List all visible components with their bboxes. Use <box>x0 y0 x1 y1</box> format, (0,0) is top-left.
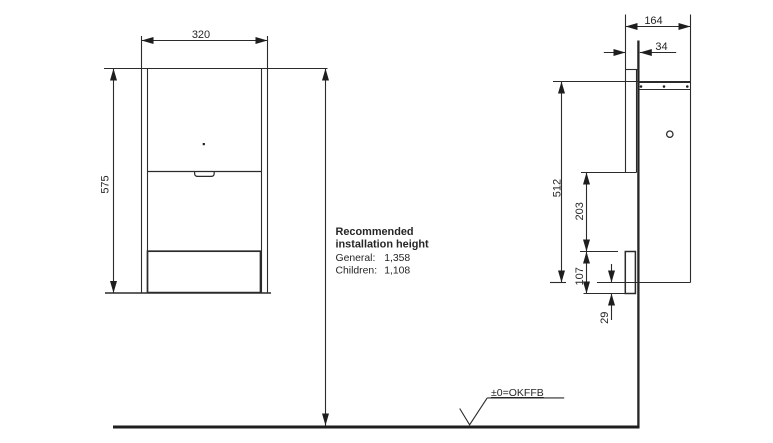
svg-text:107: 107 <box>574 267 586 285</box>
svg-text:512: 512 <box>551 179 563 197</box>
svg-text:164: 164 <box>644 15 662 27</box>
svg-text:Recommended: Recommended <box>336 226 414 238</box>
svg-text:1,358: 1,358 <box>384 253 410 264</box>
svg-text:1,108: 1,108 <box>384 266 410 277</box>
svg-text:320: 320 <box>192 29 210 41</box>
svg-text:203: 203 <box>574 202 586 220</box>
svg-text:34: 34 <box>655 41 667 53</box>
svg-text:General:: General: <box>336 253 376 264</box>
svg-text:575: 575 <box>100 175 112 193</box>
svg-text:installation height: installation height <box>336 239 430 251</box>
svg-text:29: 29 <box>599 312 611 324</box>
svg-text:Children:: Children: <box>336 266 378 277</box>
svg-text:±0=OKFFB: ±0=OKFFB <box>491 387 544 399</box>
